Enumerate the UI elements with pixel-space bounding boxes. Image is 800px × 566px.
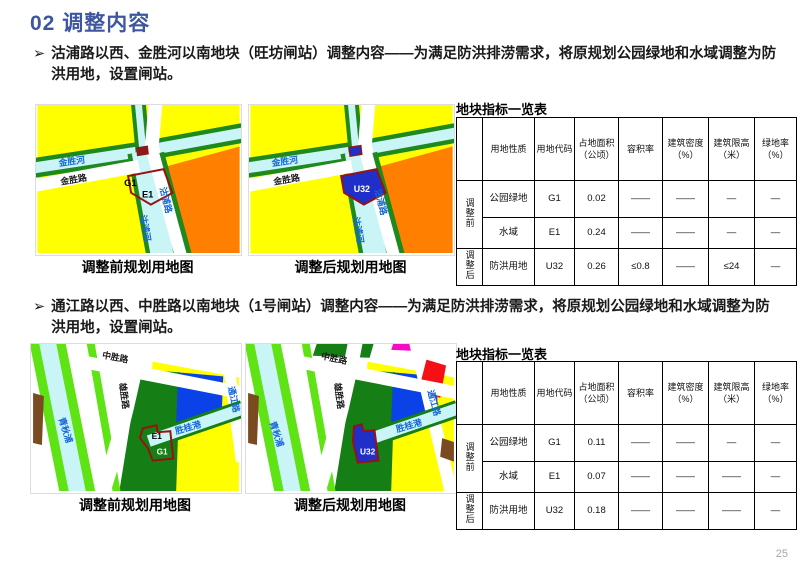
cell-far: ——	[619, 425, 663, 462]
cell-far: ——	[619, 181, 663, 218]
col-header-blank	[457, 118, 483, 181]
col-header-far: 容积率	[619, 118, 663, 181]
cell-density: ——	[663, 462, 709, 493]
cell-land-code: U32	[535, 249, 575, 286]
cell-far: ——	[619, 462, 663, 493]
col-header-density: 建筑密度（%）	[663, 362, 709, 425]
map-caption-after-2: 调整后规划用地图	[245, 495, 455, 515]
cell-land-code: E1	[535, 462, 575, 493]
slide: 02 调整内容 ➢ 沽浦路以西、金胜河以南地块（旺坊闸站）调整内容——为满足防洪…	[0, 0, 800, 566]
cell-density: ——	[663, 181, 709, 218]
parcel-e1-label: E1	[142, 190, 153, 200]
col-header-land-code: 用地代码	[535, 118, 575, 181]
cell-land-use: 公园绿地	[483, 425, 535, 462]
map-after-no1: 中胜路 雄胜路 青秋浦 胜桂港 通江路 U32	[245, 343, 457, 494]
cell-area: 0.02	[575, 181, 619, 218]
cell-land-code: G1	[535, 425, 575, 462]
bullet-arrow-icon: ➢	[33, 297, 45, 339]
cell-height: —	[709, 181, 755, 218]
group-label-before: 调整前	[457, 425, 483, 493]
col-header-area: 占地面积（公顷）	[575, 362, 619, 425]
cell-land-code: U32	[535, 493, 575, 530]
cell-height: —	[709, 218, 755, 249]
map-before-wangfang: 金胜河 金胜路 沽浦路 沽浦河 G1 E1	[35, 104, 242, 256]
parcel-e1-label: E1	[152, 431, 163, 441]
page-title: 02 调整内容	[30, 7, 150, 37]
map-before-no1: 中胜路 雄胜路 青秋浦 胜桂港 通江路 E1 G1	[30, 343, 242, 494]
cell-density: ——	[663, 493, 709, 530]
table-row: 调整后 防洪用地 U32 0.26 ≤0.8 —— ≤24 —	[457, 249, 797, 286]
cell-far: ——	[619, 218, 663, 249]
table-row: 调整前 公园绿地 G1 0.11 —— —— — —	[457, 425, 797, 462]
gate-station-icon	[349, 145, 362, 156]
cell-far: ——	[619, 493, 663, 530]
bullet-arrow-icon: ➢	[33, 44, 45, 86]
group-label-after: 调整后	[457, 493, 483, 530]
cell-green: —	[755, 462, 797, 493]
cell-density: ——	[663, 218, 709, 249]
cell-land-use: 公园绿地	[483, 181, 535, 218]
parcel-g1-label: G1	[157, 447, 168, 457]
cell-land-code: G1	[535, 181, 575, 218]
parcel-g1-label: G1	[124, 178, 137, 188]
cell-land-use: 水域	[483, 462, 535, 493]
group-label-after: 调整后	[457, 249, 483, 286]
cell-far: ≤0.8	[619, 249, 663, 286]
col-header-green-ratio: 绿地率（%）	[755, 362, 797, 425]
col-header-area: 占地面积（公顷）	[575, 118, 619, 181]
col-header-land-code: 用地代码	[535, 362, 575, 425]
col-header-green-ratio: 绿地率（%）	[755, 118, 797, 181]
indicator-table-1: 用地性质 用地代码 占地面积（公顷） 容积率 建筑密度（%） 建筑限高（米） 绿…	[456, 117, 797, 286]
cell-land-code: E1	[535, 218, 575, 249]
col-header-land-use: 用地性质	[483, 362, 535, 425]
cell-density: ——	[663, 425, 709, 462]
table-title-1: 地块指标一览表	[456, 99, 547, 118]
col-header-land-use: 用地性质	[483, 118, 535, 181]
cell-density: ——	[663, 249, 709, 286]
map-caption-before-1: 调整前规划用地图	[35, 257, 240, 277]
cell-area: 0.24	[575, 218, 619, 249]
col-header-blank	[457, 362, 483, 425]
parcel-u32-label: U32	[360, 447, 376, 457]
bullet-text-2: 通江路以西、中胜路以南地块（1号闸站）调整内容——为满足防洪排涝需求，将原规划公…	[51, 297, 781, 339]
cell-height: ——	[709, 493, 755, 530]
cell-area: 0.26	[575, 249, 619, 286]
col-header-height-limit: 建筑限高（米）	[709, 118, 755, 181]
bullet-section-1: ➢ 沽浦路以西、金胜河以南地块（旺坊闸站）调整内容——为满足防洪排涝需求，将原规…	[33, 44, 781, 86]
col-header-density: 建筑密度（%）	[663, 118, 709, 181]
indicator-table-2: 用地性质 用地代码 占地面积（公顷） 容积率 建筑密度（%） 建筑限高（米） 绿…	[456, 361, 797, 530]
table-row: 调整前 公园绿地 G1 0.02 —— —— — —	[457, 181, 797, 218]
group-label-before: 调整前	[457, 181, 483, 249]
parcel-u32-flood-control	[353, 424, 378, 462]
cell-area: 0.11	[575, 425, 619, 462]
map-caption-after-1: 调整后规划用地图	[248, 257, 453, 277]
map-caption-before-2: 调整前规划用地图	[30, 495, 240, 515]
table-row: 水域 E1 0.24 —— —— — —	[457, 218, 797, 249]
cell-land-use: 防洪用地	[483, 493, 535, 530]
cell-green: —	[755, 425, 797, 462]
table-row: 水域 E1 0.07 —— —— —— —	[457, 462, 797, 493]
cell-green: —	[755, 218, 797, 249]
cell-area: 0.18	[575, 493, 619, 530]
cell-area: 0.07	[575, 462, 619, 493]
bullet-text-1: 沽浦路以西、金胜河以南地块（旺坊闸站）调整内容——为满足防洪排涝需求，将原规划公…	[51, 44, 781, 86]
cell-land-use: 防洪用地	[483, 249, 535, 286]
cell-green: —	[755, 493, 797, 530]
cell-green: —	[755, 181, 797, 218]
table-row: 调整后 防洪用地 U32 0.18 —— —— —— —	[457, 493, 797, 530]
page-number: 25	[776, 548, 788, 560]
cell-height: ≤24	[709, 249, 755, 286]
parcel-u32-label: U32	[354, 184, 370, 194]
cell-green: —	[755, 249, 797, 286]
cell-land-use: 水域	[483, 218, 535, 249]
cell-height: —	[709, 425, 755, 462]
bullet-section-2: ➢ 通江路以西、中胜路以南地块（1号闸站）调整内容——为满足防洪排涝需求，将原规…	[33, 297, 781, 339]
col-header-far: 容积率	[619, 362, 663, 425]
col-header-height-limit: 建筑限高（米）	[709, 362, 755, 425]
cell-height: ——	[709, 462, 755, 493]
map-after-wangfang: 金胜河 金胜路 沽浦路 沽浦河 U32	[248, 104, 455, 256]
